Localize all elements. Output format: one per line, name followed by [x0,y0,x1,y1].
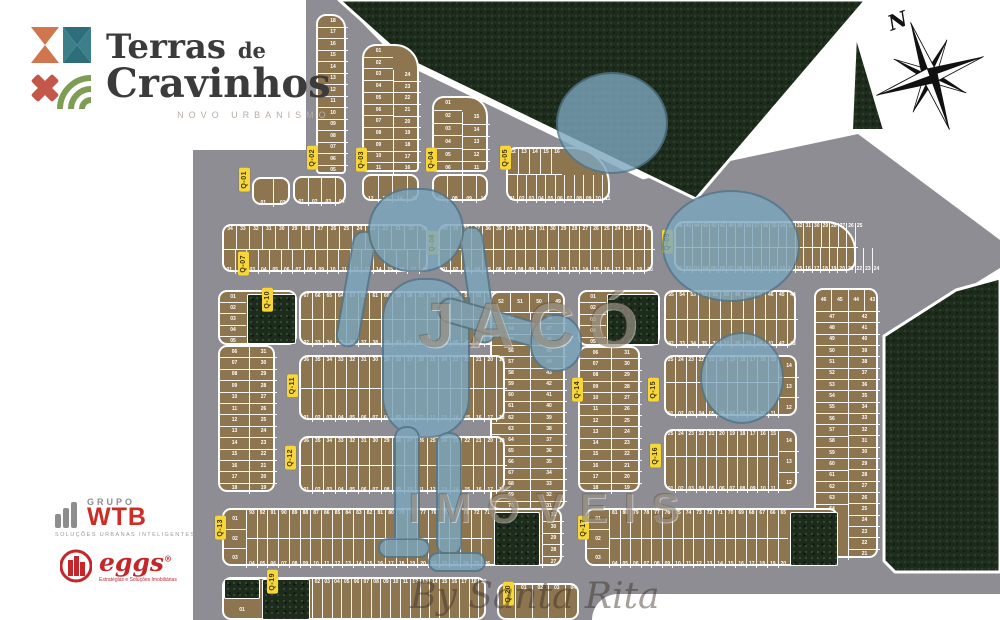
lot-number: 04 [698,411,706,418]
lot-Q-08-20: 20 [644,250,655,274]
lot-Q-17-04: 04 [610,539,620,568]
lot-number: 38 [371,340,379,347]
lot-number: 08 [653,561,661,568]
lot-number: 05 [271,267,279,274]
lot-number: 45 [836,297,844,304]
lot-number: 31 [360,438,368,445]
lot-number: 27 [550,559,558,566]
lot-number: 08 [575,196,583,203]
lot-east-columns-48: 48 [816,322,848,333]
lot-Q-04-column-02: 02 [434,110,462,123]
lot-number: 24 [623,429,631,436]
lot-Q-09-44: 44 [692,223,701,247]
lot-number: 50 [828,348,836,355]
lot-east-columns-34: 34 [849,402,880,413]
lot-number: 49 [734,292,742,299]
lot-number: 76 [430,510,438,517]
lot-number: 25 [856,223,864,230]
compass-rose-icon [858,2,998,142]
lot-Q-08-28: 28 [569,226,580,249]
lot-number: 16 [759,357,767,364]
lot-number: 14 [581,267,589,274]
lot-Q-16-18: 18 [737,431,747,456]
eggs-tagline: Estratégias e Soluções Imobiliárias [99,577,177,583]
lot-Q-08-25: 25 [601,226,612,249]
lot-Q-14-head-01: 01 [580,292,606,302]
lot-Q-07-07: 07 [292,250,304,274]
lot-number: 19 [498,357,506,364]
lot-Q-13-04: 04 [247,539,257,568]
lot-number: 02 [314,487,322,494]
lot-Q-07-31: 31 [262,226,275,249]
lot-Q-17-07: 07 [641,539,652,568]
lot-number: 23 [451,561,459,568]
lot-Q-09-45: 45 [684,223,693,247]
lot-Q-07-29: 29 [288,226,301,249]
lot-Q-15-top-rows-39: 39 [743,320,754,348]
lot-Q-07-28: 28 [301,226,314,249]
lot-Q-19-15: 15 [439,579,449,620]
lot-number: 19 [480,579,488,586]
lot-number: 33 [545,481,553,488]
lot-Q-10-columns-22: 22 [250,449,277,460]
lot-number: 73 [695,510,703,517]
lot-Q-15-05: 05 [706,383,716,418]
lot-number: 20 [838,266,846,273]
lot-east-columns-62: 62 [816,481,848,492]
lot-number: 92 [259,510,267,517]
lot-number: 19 [830,266,838,273]
lot-Q-13-06: 06 [267,539,278,568]
lot-number: 13 [785,459,793,466]
lot-number: 41 [545,392,553,399]
lot-Q-15-top-rows-37: 37 [720,320,731,348]
lot-number: 16 [475,415,483,422]
lot-number: 46 [545,337,553,344]
lot-east-columns-53: 53 [816,379,848,390]
lot-number: 24 [356,226,364,233]
lot-Q-10-columns-15: 15 [220,449,249,460]
lot-number: 64 [507,437,515,444]
lot-Q-13-76: 76 [428,510,439,538]
lot-Q-12-23: 23 [450,438,462,465]
lot-number: 29 [383,438,391,445]
lot-number: 05 [484,267,492,274]
lot-Q-01-02: 02 [273,179,293,207]
lot-Q-10-columns-26: 26 [250,403,277,414]
lot-number: 72 [706,510,714,517]
lot-Q-10-columns-14: 14 [220,437,249,448]
lot-number: 06 [360,487,368,494]
quadra-label-Q-17: Q-17 [578,516,589,540]
lot-number: 49 [828,336,836,343]
lot-number: 14 [785,363,793,370]
lot-number: 68 [748,510,756,517]
lot-Q-15-top-rows-55: 55 [666,292,676,319]
lot-number: 15 [231,451,239,458]
lot-number: 55 [507,337,515,344]
lot-Q-12-07: 07 [369,466,381,494]
lot-central-columns-47: 47 [531,323,567,334]
lot-number: 44 [789,292,797,299]
lot-number: 10 [538,267,546,274]
lot-Q-17-02: 02 [587,529,609,549]
lot-number: 24 [873,266,881,273]
lot-number: 15 [386,267,394,274]
lot-Q-09-33: 33 [786,223,795,247]
lot-number: 08 [383,487,391,494]
lot-number: 01 [231,516,239,523]
lot-number: 01 [667,486,675,493]
lot-Q-13-19: 19 [407,539,418,568]
lot-number: 04 [611,561,619,568]
lot-Q-11-30: 30 [369,357,381,388]
lot-number: 19 [728,357,736,364]
lot-number: 02 [677,411,685,418]
lot-Q-17-75: 75 [672,510,683,538]
lot-number: 27 [406,357,414,364]
lot-number: 12 [231,417,239,424]
lot-number: 03 [589,317,597,324]
lot-number: 18 [739,357,747,364]
lot-Q-11-15: 15 [461,389,473,422]
lot-number: 10 [406,415,414,422]
lot-number: 13 [778,266,786,273]
lot-number: 01 [667,411,675,418]
lot-number: 01 [302,415,310,422]
lot-Q-15-top-rows-52: 52 [698,292,709,319]
lot-Q-13-82: 82 [364,510,375,538]
lot-number: 37 [861,370,869,377]
lot-number: 12 [785,405,793,412]
lot-Q-08-39: 39 [450,226,461,249]
lot-number: 18 [421,267,429,274]
lot-number: 11 [685,561,692,568]
lot-central-columns-53: 53 [492,313,530,323]
lot-Q-07-25: 25 [339,226,352,249]
lot-number: 40 [441,226,449,233]
lot-number: 13 [363,267,371,274]
lot-number: 19 [498,438,506,445]
lot-number: 13 [231,428,239,435]
lot-Q-10-columns-12: 12 [220,414,249,425]
lot-number: 47 [756,292,764,299]
lot-number: 26 [260,406,268,413]
lot-Q-04-column-14: 14 [463,124,490,137]
lot-Q-17-66: 66 [767,510,778,538]
lot-central-top-rows-52: 52 [473,293,485,319]
lot-number: 20 [623,474,631,481]
lot-Q-03-row-15: 15 [407,176,422,203]
lot-Q-11-06: 06 [358,389,370,422]
lot-Q-09-31: 31 [803,223,812,247]
lot-number: 09 [317,267,325,274]
lot-Q-07-14: 14 [373,250,385,274]
lot-central-columns-45: 45 [531,345,567,356]
lot-Q-16-19: 19 [727,431,737,456]
lot-number: 05 [259,561,267,568]
lot-number: 83 [355,510,363,517]
lot-number: 61 [507,403,515,410]
lot-Q-13-13: 13 [342,539,353,568]
lot-number: 05 [622,561,630,568]
lot-Q-08-38: 38 [461,226,472,249]
lot-Q-09-24: 24 [872,248,881,273]
lot-Q-15-04: 04 [696,383,706,418]
lot-number: 07 [728,486,736,493]
lot-Q-15-24: 24 [675,357,685,382]
lot-number: 60 [828,461,836,468]
lot-Q-11-03: 03 [323,389,335,422]
lot-Q-09-07: 07 [726,248,735,273]
lot-number: 43 [429,340,437,347]
quadra-central-top-rows: 6766656463626160595857565554535251503233… [299,291,505,345]
lot-number: 11 [604,196,611,203]
lot-Q-10-columns-23: 23 [250,437,277,448]
lot-number: 10 [759,486,767,493]
lot-number: 14 [396,196,404,203]
quadra-label-Q-05: Q-05 [500,146,511,170]
lot-number: 05 [348,487,356,494]
lot-east-columns-39: 39 [849,345,880,356]
lot-Q-17-17: 17 [746,539,757,568]
lot-number: 10 [594,196,602,203]
lot-Q-15-06: 06 [716,383,726,418]
lot-Q-08-07: 07 [504,250,515,274]
lot-number: 23 [452,438,460,445]
lot-Q-05-05: 05 [545,175,555,203]
lot-number: 10 [392,579,400,586]
wtb-bars-icon [55,500,81,528]
lot-number: 12 [770,266,778,273]
lot-Q-15-top-rows-40: 40 [754,320,765,348]
lot-Q-14-columns-20: 20 [612,471,642,482]
lot-Q-07-23: 23 [365,226,378,249]
lot-number: 21 [394,226,402,233]
lot-Q-12-11: 11 [415,466,427,494]
lot-central-columns-36: 36 [531,445,567,456]
lot-central-columns-41: 41 [531,390,567,401]
lot-Q-17-03: 03 [587,548,609,568]
lot-Q-11-09: 09 [392,389,404,422]
lot-central-top-rows-58: 58 [404,293,416,319]
lot-central-columns-44: 44 [531,356,567,367]
lot-number: 16 [759,431,767,438]
lot-Q-01-01: 01 [254,179,273,207]
lot-Q-08-30: 30 [547,226,558,249]
lot-number: 81 [611,510,619,517]
lot-number: 13 [592,429,600,436]
lot-number: 15 [796,266,804,273]
lot-number: 75 [674,510,682,517]
lot-number: 81 [377,510,385,517]
lot-number: 18 [470,579,478,586]
lot-Q-16-21: 21 [706,431,716,456]
lot-Q-16-22: 22 [696,431,706,456]
lot-number: 01 [444,100,452,107]
lot-number: 29 [822,223,830,230]
lot-Q-14-columns-23: 23 [612,438,642,449]
lot-Q-03-column-18: 18 [394,139,421,151]
lot-central-columns-40: 40 [531,401,567,412]
lot-Q-14-columns-27: 27 [612,392,642,403]
lot-number: 19 [728,431,736,438]
lot-number: 01 [225,267,233,274]
lot-number: 22 [861,540,869,547]
lot-number: 02 [518,196,526,203]
lot-central-top-rows-35: 35 [335,320,347,347]
lot-Q-03-column-09: 09 [364,139,393,151]
lot-Q-08-29: 29 [558,226,569,249]
wtb-logo: GRUPO WTB SOLUÇÕES URBANAS INTELIGENTES [55,497,215,538]
lot-number: 33 [239,226,247,233]
lot-number: 10 [753,266,761,273]
lot-Q-12-28: 28 [392,438,404,465]
lot-number: 31 [623,350,631,357]
lot-Q-11-25: 25 [427,357,439,388]
lot-number: 40 [727,223,735,230]
lot-number: 30 [549,226,557,233]
lot-number: 65 [507,448,515,455]
lot-number: 03 [687,486,695,493]
lot-number: 30 [260,360,268,367]
lot-Q-11-02: 02 [312,389,324,422]
lot-number: 07 [643,561,651,568]
lot-number: 46 [767,292,775,299]
lot-Q-13-73: 73 [460,510,471,538]
lot-Q-08-18: 18 [623,250,634,274]
lot-number: 21 [475,438,483,445]
lot-number: 08 [329,133,337,140]
eggs-logo: eggs® Estratégias e Soluções Imobiliária… [60,548,177,584]
lot-central-top-rows-59: 59 [392,293,404,319]
green-area [607,294,659,345]
lot-Q-15-top-rows-47: 47 [754,292,765,319]
lot-Q-08-33: 33 [515,226,526,249]
lot-Q-16-14: 14 [779,431,799,451]
lot-Q-09-22: 22 [855,248,864,273]
quadra-Q-13: 0102039392919089888786858483828180797877… [222,508,562,566]
lot-Q-09-20: 20 [837,248,846,273]
quadra-label-Q-04: Q-04 [426,148,437,172]
lot-number: 54 [507,326,515,333]
quadra-label-Q-07: Q-07 [238,252,249,276]
lot-number: 21 [404,107,412,114]
lot-central-top-rows-33: 33 [312,320,324,347]
lot-central-columns-55: 55 [492,334,530,345]
lot-Q-07-06: 06 [281,250,293,274]
lot-number: 57 [507,359,515,366]
lot-Q-10-columns-17: 17 [220,471,249,482]
lot-number: 48 [545,315,553,322]
lot-Q-08-02: 02 [450,250,461,274]
lot-number: 14 [355,561,363,568]
lot-number: 23 [452,357,460,364]
lot-Q-17-11: 11 [683,539,694,568]
lot-number: 14 [452,487,460,494]
lot-central-top-rows-45: 45 [450,320,462,347]
lot-number: 41 [406,340,414,347]
lot-Q-14-columns-31: 31 [612,348,642,358]
lot-number: 12 [429,487,437,494]
lot-number: 06 [718,411,726,418]
quadra-label-Q-08: Q-08 [427,231,438,255]
lot-number: 07 [329,144,337,151]
lot-number: 24 [462,561,470,568]
lot-central-top-rows-66: 66 [312,293,324,319]
lot-Q-15-09: 09 [747,383,757,418]
lot-Q-05-03: 03 [526,175,536,203]
lot-Q-08-14: 14 [579,250,590,274]
lot-Q-15-top-rows-41: 41 [765,320,776,348]
lot-Q-13-72: 72 [471,510,482,538]
lot-east-columns-58: 58 [816,436,848,447]
lot-east-columns-35: 35 [849,390,880,401]
lot-number: 02 [452,267,460,274]
lot-number: 58 [828,438,836,445]
lot-number: 42 [861,314,869,321]
lot-number: 05 [708,411,716,418]
lot-number: 19 [409,561,417,568]
lot-number: 42 [417,340,425,347]
lot-number: 01 [520,585,528,592]
lot-number: 04 [337,415,345,422]
lot-number: 05 [329,167,337,174]
lot-number: 82 [366,510,374,517]
lot-Q-05-07: 07 [564,175,574,203]
lot-east-columns-60: 60 [816,458,848,469]
quadra-Q-10-head: 0102030405 [218,290,297,345]
lot-Q-12-25: 25 [427,438,439,465]
lot-number: 15 [727,561,735,568]
lot-Q-09-29: 29 [821,223,830,247]
lot-Q-03-column-07: 07 [364,115,393,127]
lot-Q-10-columns-19: 19 [250,483,277,494]
lot-number: 19 [635,267,643,274]
lot-Q-15-top-rows-45: 45 [776,292,787,319]
quadra-Q-16: 2524232221201918171615010203040506070809… [664,429,797,491]
lot-number: 25 [429,357,437,364]
lot-number: 38 [545,426,553,433]
lot-Q-03-column-20: 20 [394,116,421,128]
lot-Q-14-columns-09: 09 [580,381,611,392]
lot-Q-07-34: 34 [224,226,236,249]
lot-number: 17 [404,154,412,161]
lot-number: 12 [334,561,342,568]
lot-number: 18 [821,266,829,273]
lot-number: 05 [343,579,351,586]
quadra-label-Q-03: Q-03 [356,148,367,172]
lot-number: 07 [363,579,371,586]
quadra-Q-01: 0102 [252,177,290,205]
lot-Q-12-16: 16 [473,466,485,494]
lot-Q-12-06: 06 [358,466,370,494]
lot-Q-09-14: 14 [786,248,795,273]
lot-Q-11-29: 29 [381,357,393,388]
lot-number: 62 [828,484,836,491]
lot-Q-20-01: 01 [516,585,532,620]
lot-Q-16-10: 10 [757,457,767,493]
lot-central-top-rows-40: 40 [392,320,404,347]
lot-Q-07-27: 27 [314,226,327,249]
lot-Q-14-columns-29: 29 [612,370,642,381]
lot-Q-03-column-02: 02 [364,57,393,69]
lot-Q-13-10: 10 [310,539,321,568]
lot-number: 01 [441,267,449,274]
lot-number: 04 [338,199,346,206]
lot-number: 13 [440,415,448,422]
lot-number: 86 [323,510,331,517]
